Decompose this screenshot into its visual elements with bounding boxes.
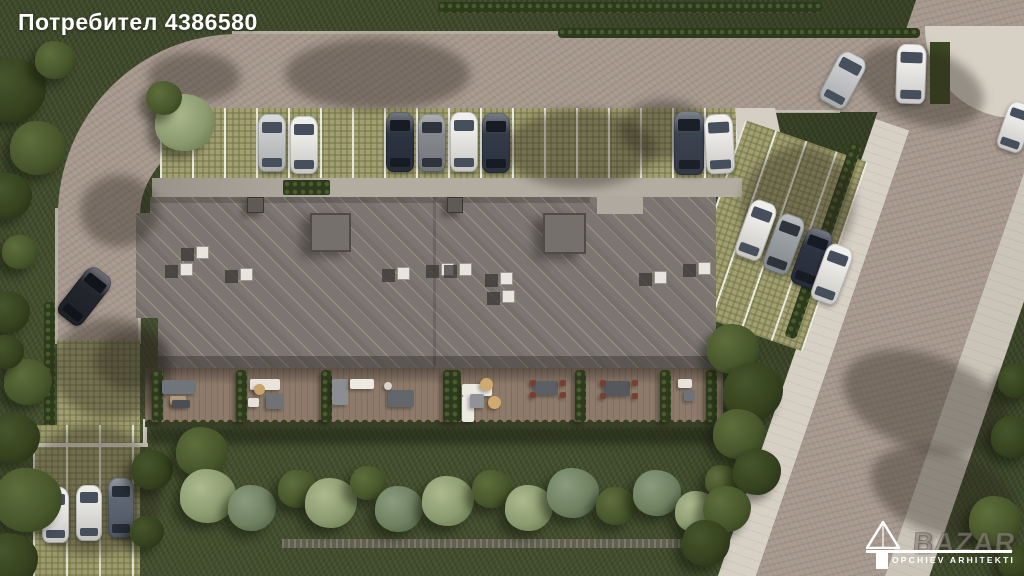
car-rear-window: [900, 89, 921, 99]
car: [76, 485, 102, 541]
tree: [10, 121, 66, 174]
logo-t-stem: [876, 553, 888, 569]
car-windshield: [262, 122, 282, 133]
tree: [146, 81, 182, 115]
terrace-furniture: [530, 392, 536, 398]
architect-logo-triangle-icon: [866, 521, 900, 549]
terrace-furniture: [480, 378, 493, 391]
car-rear-window: [814, 285, 835, 300]
roof-structure: [543, 213, 586, 254]
roof-seam: [433, 197, 436, 370]
car-windshield: [838, 57, 862, 77]
car: [418, 114, 446, 172]
tree: [130, 516, 164, 548]
tree: [547, 468, 599, 517]
architect-name: OPCHIEV ARHITEKTI: [892, 555, 1015, 565]
car: [290, 116, 318, 174]
skylight: [502, 290, 515, 303]
car-rear-window: [823, 88, 845, 105]
terrace-hedge: [706, 370, 717, 422]
car-windshield: [422, 122, 442, 133]
terrace-furniture: [172, 400, 190, 408]
terrace-hedge: [660, 370, 671, 422]
skylight: [196, 246, 209, 259]
terrace-furniture: [254, 384, 265, 395]
car-windshield: [750, 206, 773, 224]
terrace-hedge: [443, 370, 461, 422]
roof-block: [247, 197, 264, 213]
skylight: [459, 263, 472, 276]
terrace-furniture: [384, 382, 392, 390]
tree: [998, 364, 1024, 398]
car-windshield: [778, 220, 801, 238]
car-rear-window: [62, 302, 84, 322]
car-windshield: [826, 250, 849, 268]
car-windshield: [294, 124, 314, 135]
hedge: [438, 2, 822, 13]
car-rear-window: [454, 158, 474, 167]
curb: [55, 208, 58, 344]
car-rear-window: [80, 528, 98, 536]
skylight: [240, 268, 253, 281]
car-rear-window: [262, 158, 282, 167]
tree: [596, 487, 636, 525]
terrace-furniture: [488, 396, 501, 409]
car: [450, 112, 478, 172]
car-windshield: [390, 120, 410, 131]
terrace-furniture: [632, 393, 638, 399]
tree: [505, 485, 553, 531]
terrace-furniture: [560, 380, 566, 386]
user-watermark-label: Потребител 4386580: [18, 9, 258, 36]
car-rear-window: [679, 160, 700, 170]
tree: [733, 449, 781, 495]
car: [674, 111, 704, 175]
car: [386, 112, 414, 172]
terrace-furniture: [600, 380, 606, 386]
architect-logo: OPCHIEV ARHITEKTI: [860, 520, 1020, 570]
tree: [0, 291, 30, 333]
roof-structure: [310, 213, 351, 252]
car: [895, 43, 927, 104]
skylight: [397, 267, 410, 280]
terrace-furniture: [470, 394, 484, 408]
car-rear-window: [1000, 136, 1020, 149]
tree: [633, 470, 681, 516]
terrace-furniture: [388, 390, 414, 407]
car-windshield: [708, 121, 729, 133]
car-rear-window: [486, 159, 506, 168]
car-windshield: [80, 492, 99, 503]
aerial-render-photo: Потребител 4386580 BAZAR OPCHIEV ARHITEK…: [0, 0, 1024, 576]
terrace-furniture: [684, 390, 695, 401]
ground-shadow: [285, 38, 470, 110]
tree: [2, 235, 38, 269]
car-rear-window: [294, 160, 314, 169]
hedge: [558, 28, 920, 38]
car-windshield: [454, 120, 474, 131]
car-rear-window: [46, 530, 65, 538]
tree: [0, 173, 32, 219]
car-windshield: [486, 121, 506, 132]
roof-block: [447, 197, 463, 213]
terrace-furniture: [266, 394, 284, 409]
car-rear-window: [738, 241, 759, 256]
tree: [131, 450, 173, 490]
car-windshield: [678, 119, 700, 131]
skylight: [441, 263, 454, 276]
skylight: [698, 262, 711, 275]
terrace-hedge: [152, 370, 163, 422]
terrace-furniture: [600, 393, 606, 399]
terrace-furniture: [632, 380, 638, 386]
walkway: [152, 178, 742, 197]
terrace-furniture: [332, 379, 348, 405]
terrace-hedge: [575, 370, 586, 422]
skylight: [500, 272, 513, 285]
terrace-hedge: [321, 370, 332, 422]
tree: [682, 520, 730, 566]
ground-shadow: [80, 175, 158, 247]
car-rear-window: [390, 158, 410, 167]
tree: [228, 485, 276, 531]
tree: [35, 41, 75, 79]
car-rear-window: [710, 159, 731, 169]
car: [482, 113, 510, 173]
terrace-furniture: [604, 381, 630, 396]
car-windshield: [112, 486, 131, 497]
terrace-furniture: [560, 392, 566, 398]
skylight: [654, 271, 667, 284]
gravel-path: [282, 539, 734, 548]
terrace-furniture: [534, 381, 558, 395]
car-windshield: [1009, 106, 1024, 121]
tree: [422, 476, 474, 525]
tree: [991, 416, 1024, 458]
car-rear-window: [766, 255, 787, 270]
terrace-furniture: [678, 379, 692, 388]
car-rear-window: [112, 524, 130, 533]
terrace-furniture: [248, 398, 259, 407]
terrace-furniture: [530, 380, 536, 386]
car-windshield: [83, 272, 107, 294]
car: [258, 114, 286, 172]
terrace-furniture: [350, 379, 374, 389]
hedge: [283, 180, 330, 195]
car-windshield: [901, 51, 923, 63]
roof-notch-pavement: [595, 196, 645, 216]
tree: [375, 486, 423, 532]
car: [703, 113, 735, 174]
car-rear-window: [422, 158, 442, 167]
skylight: [180, 263, 193, 276]
roof-edge: [150, 197, 590, 203]
planter-strip: [145, 418, 723, 429]
car-rear-window: [794, 269, 815, 284]
terrace-hedge: [236, 370, 247, 422]
terrace-furniture: [162, 380, 196, 394]
